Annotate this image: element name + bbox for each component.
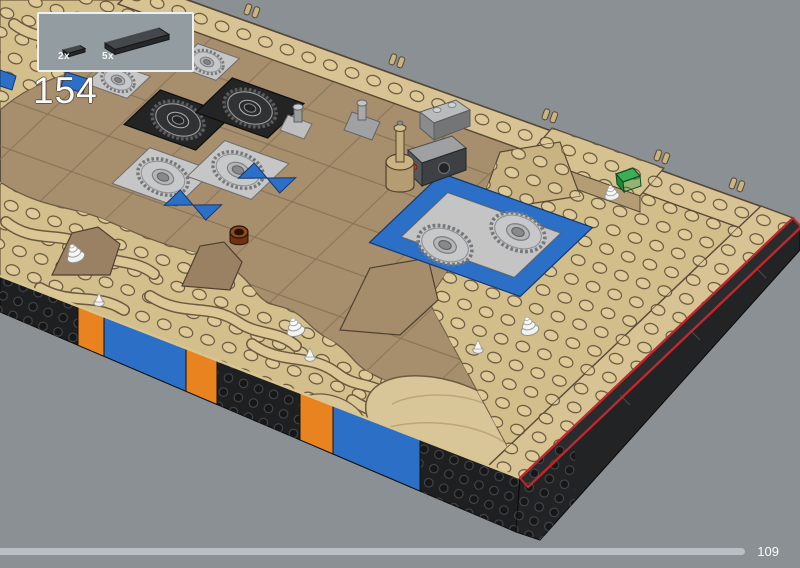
part-thumbnail-long-tile <box>105 28 169 55</box>
instruction-page: 2x 5x 154 109 <box>0 0 800 568</box>
page-progress-fill[interactable] <box>0 548 745 555</box>
lego-model-viewport[interactable] <box>0 0 800 568</box>
page-number: 109 <box>757 544 779 559</box>
page-progress-bar[interactable]: 109 <box>0 544 800 560</box>
step-number: 154 <box>33 70 98 112</box>
copper-cup <box>230 226 248 245</box>
part-quantity-label: 2x <box>58 51 70 62</box>
engine-wheel <box>439 163 450 174</box>
parts-callout: 2x 5x <box>37 12 194 72</box>
part-quantity-label: 5x <box>102 51 114 62</box>
